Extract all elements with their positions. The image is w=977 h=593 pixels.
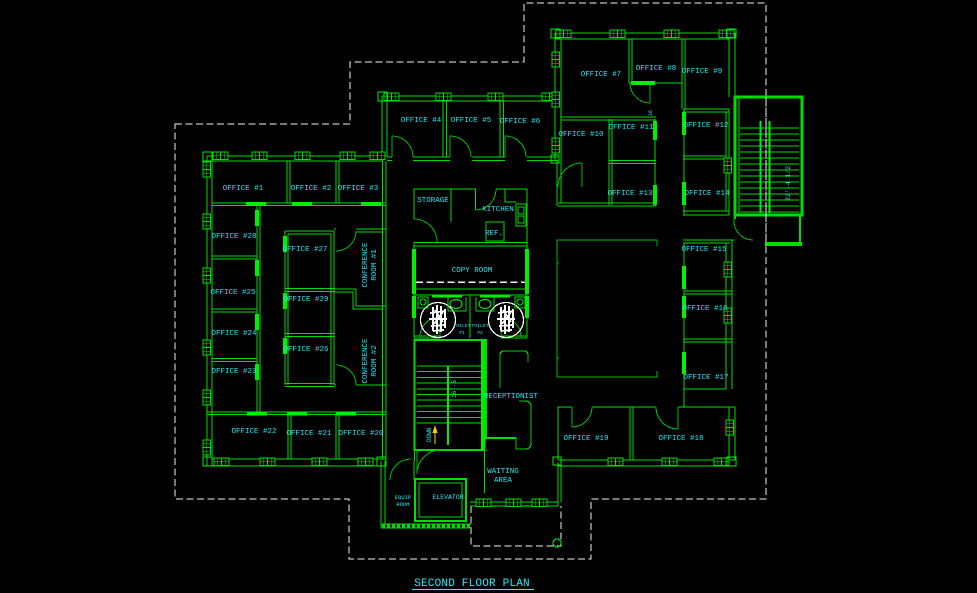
svg-text:OFFICE #18: OFFICE #18 bbox=[658, 435, 703, 443]
svg-text:OFFICE #16: OFFICE #16 bbox=[682, 305, 728, 313]
svg-text:KITCHEN: KITCHEN bbox=[482, 206, 514, 214]
svg-text:OFFICE #23: OFFICE #23 bbox=[211, 368, 257, 376]
svg-text:OFFICE #22: OFFICE #22 bbox=[231, 428, 276, 436]
svg-text:WAITING: WAITING bbox=[487, 468, 519, 476]
svg-text:22'-4 1/2: 22'-4 1/2 bbox=[785, 166, 792, 201]
svg-text:OFFICE #9: OFFICE #9 bbox=[682, 68, 723, 76]
svg-text:16: 16 bbox=[648, 110, 654, 116]
svg-text:OFFICE #21: OFFICE #21 bbox=[286, 430, 332, 438]
svg-text:OFFICE #11: OFFICE #11 bbox=[608, 124, 654, 132]
svg-text:CONFERENCE: CONFERENCE bbox=[362, 242, 370, 288]
svg-text:EQUIP: EQUIP bbox=[395, 494, 412, 501]
svg-text:ELEVATOR: ELEVATOR bbox=[432, 494, 463, 501]
svg-text:OFFICE #26: OFFICE #26 bbox=[283, 346, 329, 354]
svg-text:OFFICE #10: OFFICE #10 bbox=[558, 131, 604, 139]
svg-text:RECEPTIONIST: RECEPTIONIST bbox=[484, 393, 539, 401]
svg-text:OFFICE #5: OFFICE #5 bbox=[451, 117, 492, 125]
svg-text:OFFICE #24: OFFICE #24 bbox=[211, 330, 257, 338]
svg-text:OFFICE #14: OFFICE #14 bbox=[684, 190, 730, 198]
svg-text:OFFICE #29: OFFICE #29 bbox=[283, 296, 328, 304]
svg-text:OFFICE #7: OFFICE #7 bbox=[581, 71, 622, 79]
svg-text:OFFICE #8: OFFICE #8 bbox=[636, 65, 677, 73]
svg-text:DOWN: DOWN bbox=[426, 427, 433, 442]
svg-text:ROOM: ROOM bbox=[396, 501, 409, 508]
svg-text:REF.: REF. bbox=[485, 230, 503, 238]
svg-text:OFFICE #28: OFFICE #28 bbox=[211, 233, 256, 241]
svg-text:OFFICE #4: OFFICE #4 bbox=[401, 117, 442, 125]
svg-text:STORAGE: STORAGE bbox=[417, 197, 449, 205]
svg-text:#2: #2 bbox=[477, 330, 483, 336]
svg-text:#1: #1 bbox=[459, 330, 465, 336]
svg-text:SECOND FLOOR PLAN: SECOND FLOOR PLAN bbox=[414, 578, 530, 590]
svg-text:OFFICE #27: OFFICE #27 bbox=[282, 246, 327, 254]
svg-text:TOILET: TOILET bbox=[453, 323, 470, 329]
svg-text:TOILET: TOILET bbox=[471, 323, 488, 329]
svg-text:AREA: AREA bbox=[494, 477, 513, 485]
svg-text:ROOM #1: ROOM #1 bbox=[371, 249, 379, 281]
svg-text:16'-5: 16'-5 bbox=[451, 380, 458, 398]
svg-text:OFFICE #2: OFFICE #2 bbox=[291, 185, 332, 193]
svg-text:OFFICE #25: OFFICE #25 bbox=[210, 289, 256, 297]
svg-text:OFFICE #3: OFFICE #3 bbox=[338, 185, 379, 193]
svg-text:ROOM #2: ROOM #2 bbox=[371, 345, 379, 377]
svg-text:OFFICE #20: OFFICE #20 bbox=[338, 430, 384, 438]
svg-text:OFFICE #19: OFFICE #19 bbox=[563, 435, 608, 443]
svg-text:OFFICE #15: OFFICE #15 bbox=[681, 246, 727, 254]
svg-text:OFFICE #1: OFFICE #1 bbox=[223, 185, 264, 193]
svg-text:OFFICE #12: OFFICE #12 bbox=[683, 122, 728, 130]
svg-text:OFFICE #17: OFFICE #17 bbox=[683, 374, 728, 382]
svg-text:CONFERENCE: CONFERENCE bbox=[362, 338, 370, 384]
svg-text:COPY ROOM: COPY ROOM bbox=[452, 267, 493, 275]
svg-text:OFFICE #13: OFFICE #13 bbox=[607, 190, 653, 198]
svg-text:OFFICE #6: OFFICE #6 bbox=[500, 118, 541, 126]
